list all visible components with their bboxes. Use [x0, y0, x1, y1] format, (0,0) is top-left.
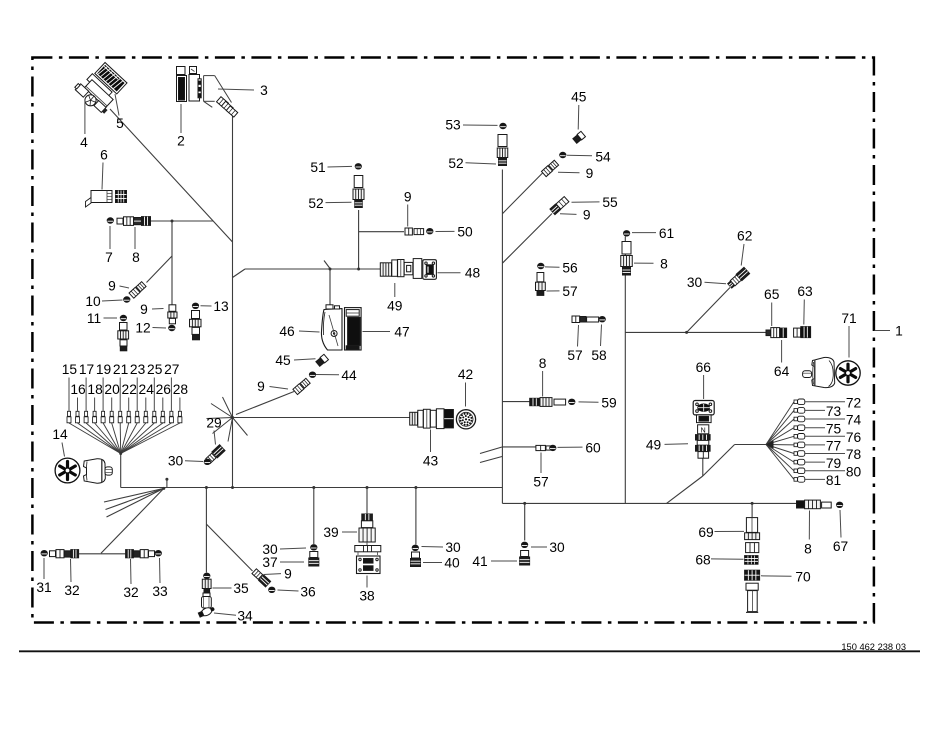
svg-text:16: 16	[70, 382, 86, 397]
svg-text:8: 8	[539, 356, 547, 371]
svg-text:8: 8	[132, 250, 140, 265]
svg-text:11: 11	[87, 311, 101, 326]
svg-text:39: 39	[323, 525, 339, 540]
svg-text:75: 75	[826, 421, 842, 436]
svg-text:1: 1	[895, 324, 903, 339]
svg-text:68: 68	[695, 552, 711, 567]
svg-text:32: 32	[123, 585, 138, 600]
svg-text:58: 58	[591, 348, 607, 363]
svg-text:38: 38	[359, 589, 375, 604]
svg-text:32: 32	[64, 583, 79, 598]
svg-text:9: 9	[284, 567, 292, 582]
svg-text:57: 57	[562, 284, 577, 299]
svg-text:22: 22	[122, 382, 137, 397]
svg-text:10: 10	[85, 294, 101, 309]
svg-text:80: 80	[846, 465, 862, 480]
svg-text:55: 55	[602, 195, 618, 210]
svg-text:66: 66	[696, 360, 712, 375]
svg-text:18: 18	[87, 382, 103, 397]
svg-text:43: 43	[423, 454, 439, 469]
svg-text:42: 42	[458, 367, 473, 382]
svg-text:15: 15	[62, 362, 78, 377]
svg-text:64: 64	[774, 364, 790, 379]
svg-text:74: 74	[846, 413, 862, 428]
svg-text:51: 51	[310, 160, 325, 175]
svg-text:8: 8	[660, 256, 668, 271]
svg-text:46: 46	[279, 324, 295, 339]
svg-text:49: 49	[387, 299, 403, 314]
svg-text:45: 45	[275, 353, 291, 368]
svg-text:61: 61	[659, 226, 674, 241]
svg-text:78: 78	[846, 447, 862, 462]
svg-text:52: 52	[448, 156, 463, 171]
svg-text:76: 76	[846, 430, 862, 445]
svg-text:34: 34	[237, 609, 253, 624]
svg-text:8: 8	[804, 542, 812, 557]
svg-text:73: 73	[826, 404, 842, 419]
svg-text:54: 54	[595, 150, 611, 165]
svg-text:9: 9	[108, 279, 116, 294]
svg-text:21: 21	[113, 362, 128, 377]
svg-text:12: 12	[135, 321, 150, 336]
svg-text:9: 9	[404, 190, 412, 205]
svg-text:69: 69	[698, 525, 714, 540]
svg-text:4: 4	[80, 135, 88, 150]
svg-text:33: 33	[152, 584, 168, 599]
svg-text:20: 20	[104, 382, 120, 397]
svg-text:9: 9	[257, 379, 265, 394]
svg-text:5: 5	[116, 116, 124, 131]
svg-text:N: N	[701, 427, 706, 434]
svg-text:67: 67	[833, 539, 848, 554]
svg-text:59: 59	[601, 396, 617, 411]
svg-text:30: 30	[168, 454, 184, 469]
svg-text:29: 29	[206, 416, 222, 431]
svg-text:70: 70	[795, 570, 811, 585]
svg-text:37: 37	[262, 555, 277, 570]
svg-text:48: 48	[465, 266, 481, 281]
svg-text:9: 9	[583, 208, 591, 223]
svg-text:27: 27	[164, 362, 179, 377]
svg-text:72: 72	[846, 396, 861, 411]
svg-text:2: 2	[177, 134, 185, 149]
svg-text:81: 81	[826, 473, 841, 488]
svg-text:41: 41	[472, 554, 487, 569]
svg-text:24: 24	[139, 382, 155, 397]
svg-text:150 462 238 03: 150 462 238 03	[841, 642, 906, 652]
svg-text:7: 7	[105, 250, 113, 265]
svg-text:57: 57	[533, 475, 548, 490]
svg-text:50: 50	[457, 225, 473, 240]
svg-text:31: 31	[36, 580, 51, 595]
svg-text:9: 9	[140, 302, 148, 317]
svg-text:47: 47	[394, 325, 409, 340]
svg-text:36: 36	[300, 585, 316, 600]
svg-text:52: 52	[308, 196, 323, 211]
svg-text:17: 17	[79, 362, 94, 377]
svg-text:63: 63	[797, 284, 813, 299]
svg-text:28: 28	[173, 382, 189, 397]
svg-text:30: 30	[549, 540, 565, 555]
svg-text:56: 56	[562, 261, 578, 276]
svg-text:3: 3	[260, 83, 268, 98]
svg-text:9: 9	[586, 166, 594, 181]
svg-text:25: 25	[147, 362, 163, 377]
svg-text:30: 30	[687, 275, 703, 290]
svg-text:60: 60	[585, 440, 601, 455]
svg-text:57: 57	[567, 348, 582, 363]
svg-text:30: 30	[445, 540, 461, 555]
svg-text:13: 13	[213, 299, 229, 314]
svg-text:14: 14	[52, 427, 68, 442]
svg-text:26: 26	[156, 382, 172, 397]
svg-text:45: 45	[571, 90, 587, 105]
svg-text:35: 35	[233, 581, 249, 596]
svg-text:49: 49	[646, 438, 662, 453]
svg-text:6: 6	[100, 148, 108, 163]
svg-text:65: 65	[764, 287, 780, 302]
svg-text:79: 79	[826, 456, 842, 471]
svg-text:53: 53	[445, 118, 461, 133]
svg-text:44: 44	[341, 368, 357, 383]
svg-text:23: 23	[130, 362, 146, 377]
svg-text:77: 77	[826, 439, 841, 454]
svg-text:62: 62	[737, 229, 752, 244]
svg-text:71: 71	[841, 311, 856, 326]
svg-text:19: 19	[96, 362, 112, 377]
svg-text:40: 40	[444, 556, 460, 571]
